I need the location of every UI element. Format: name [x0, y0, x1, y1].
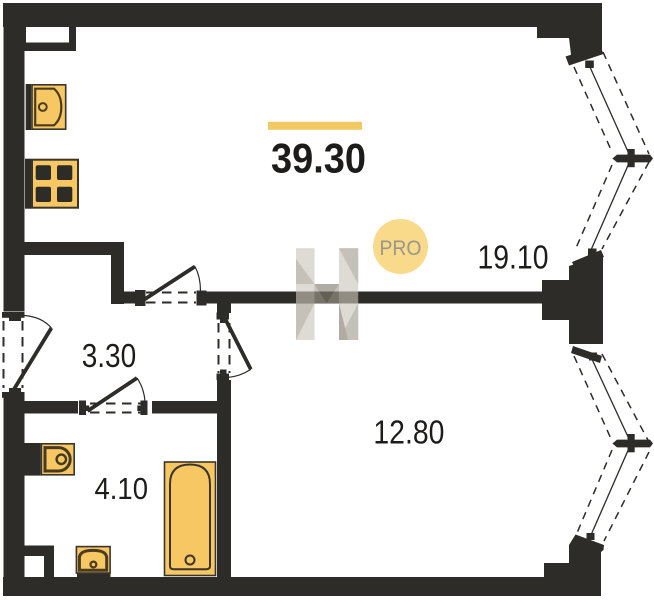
svg-text:12.80: 12.80 — [373, 414, 444, 451]
svg-text:39.30: 39.30 — [271, 135, 366, 182]
svg-text:4.10: 4.10 — [95, 471, 149, 506]
svg-text:PRO: PRO — [380, 236, 422, 260]
svg-text:19.10: 19.10 — [478, 239, 549, 276]
svg-text:3.30: 3.30 — [82, 337, 137, 374]
